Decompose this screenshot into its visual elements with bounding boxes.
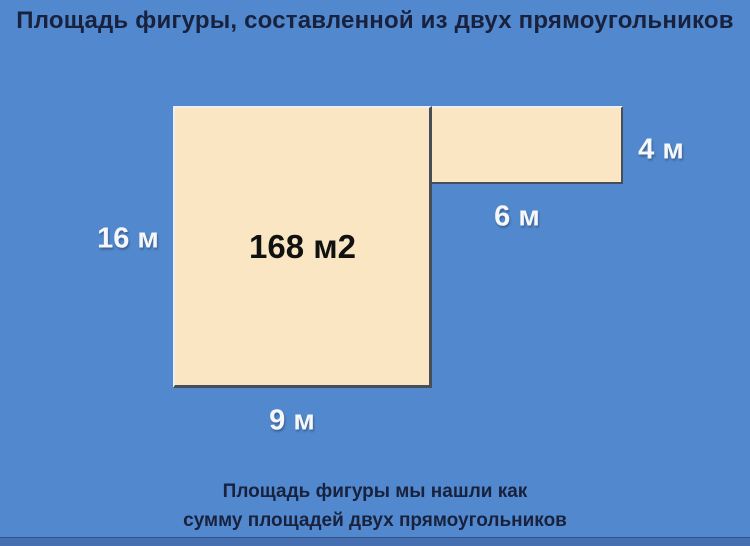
total-area-label: 168 м2	[173, 106, 432, 388]
dimension-label-width-small: 6 м	[494, 201, 540, 234]
caption: Площадь фигуры мы нашли как сумму площад…	[0, 477, 750, 535]
dimension-label-width-large: 9 м	[269, 405, 315, 438]
caption-line-2: сумму площадей двух прямоугольников	[0, 506, 750, 535]
page-title: Площадь фигуры, составленной из двух пря…	[0, 7, 750, 35]
caption-line-1: Площадь фигуры мы нашли как	[0, 477, 750, 506]
footer-strip	[0, 537, 750, 546]
slide-background: Площадь фигуры, составленной из двух пря…	[0, 0, 750, 546]
small-rectangle-shape	[432, 106, 623, 184]
dimension-label-height-small: 4 м	[638, 134, 684, 167]
dimension-label-height-large: 16 м	[97, 223, 159, 256]
